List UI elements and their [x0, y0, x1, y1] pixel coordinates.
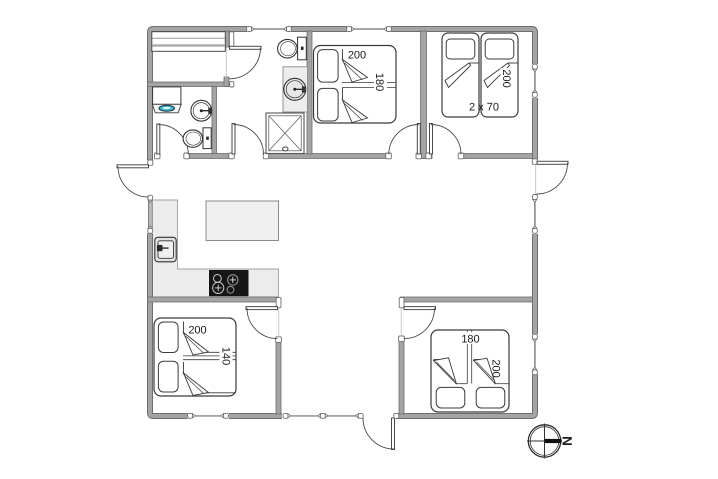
svg-text:200: 200 — [500, 69, 512, 87]
svg-text:200: 200 — [348, 50, 366, 62]
svg-text:200: 200 — [490, 359, 502, 377]
svg-text:2 x 70: 2 x 70 — [469, 102, 499, 114]
svg-text:200: 200 — [188, 325, 206, 337]
svg-text:140: 140 — [220, 347, 232, 365]
svg-text:180: 180 — [461, 334, 479, 346]
svg-text:180: 180 — [373, 73, 385, 91]
svg-text:N: N — [560, 436, 575, 446]
